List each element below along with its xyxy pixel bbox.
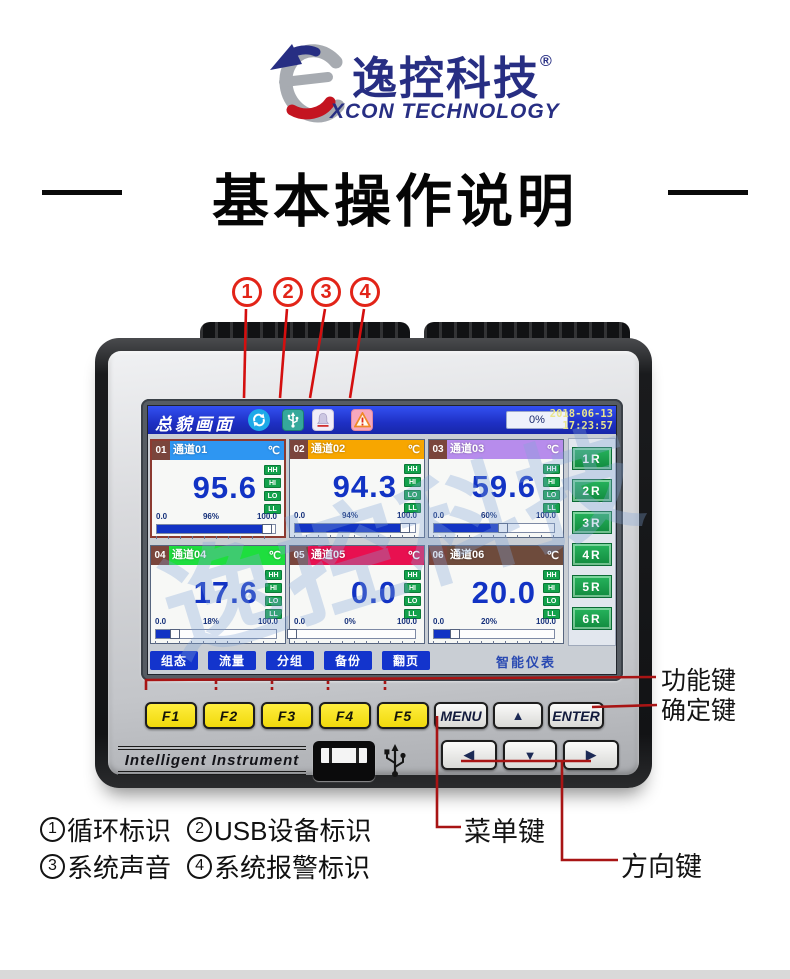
relay-status-column: 1R 2R 3R 4R 5R 6R <box>568 438 616 646</box>
channel-scale: 0.0 0% 100.0 <box>290 617 424 627</box>
channel-value: 17.6 <box>157 571 258 615</box>
channel-scale: 0.0 20% 100.0 <box>429 617 563 627</box>
softkey-button[interactable]: 翻页 <box>382 651 430 670</box>
alarm-badge-hi: HI <box>543 477 560 487</box>
scale-max: 100.0 <box>397 617 417 626</box>
function-key[interactable]: F4 <box>319 702 371 729</box>
channel-bargraph <box>294 523 416 533</box>
relay-button[interactable]: 6R <box>572 607 612 630</box>
recorder-device: 总貌画面 <box>95 338 652 788</box>
relay-button[interactable]: 1R <box>572 447 612 470</box>
legend-text-2: USB设备标识 <box>214 811 371 848</box>
down-arrow-icon: ▼ <box>524 748 537 763</box>
direction-keys-label: 方向键 <box>621 845 702 884</box>
nav-keys: MENU ▲ ENTER <box>434 702 604 729</box>
channel-bargraph <box>155 629 277 639</box>
channel-panel[interactable]: 02 通道02 ℃ 94.3 HH HI LO LL <box>289 439 425 538</box>
device-front-panel: 总貌画面 <box>108 351 639 775</box>
channel-bargraph <box>156 524 276 534</box>
legend-text-1: 循环标识 <box>67 811 171 848</box>
scale-max: 100.0 <box>536 617 556 626</box>
channel-name: 通道05 <box>308 546 408 565</box>
channel-number: 01 <box>152 441 170 460</box>
legend-row-1: 1 循环标识 2 USB设备标识 <box>40 812 387 846</box>
screen-title: 总貌画面 <box>155 410 235 435</box>
function-keys: F1 F2 F3 F4 F5 <box>145 702 429 729</box>
alarm-badge-lo: LO <box>543 490 560 500</box>
softkey-button[interactable]: 分组 <box>266 651 314 670</box>
enter-key[interactable]: ENTER <box>548 702 604 729</box>
alarm-badges: HH HI LO LL <box>264 465 281 514</box>
alarm-badge-lo: LO <box>404 490 421 500</box>
channel-unit: ℃ <box>268 444 284 457</box>
usb-port[interactable] <box>313 741 375 781</box>
brand-name-cn: 逸控科技® <box>352 42 554 107</box>
right-arrow-icon: ▶ <box>586 747 596 763</box>
alarm-badges: HH HI LO LL <box>404 464 421 513</box>
instrument-brand-label: 智能仪表 <box>496 652 556 671</box>
status-bar: 总貌画面 <box>148 406 616 434</box>
scale-percent: 94% <box>290 511 410 520</box>
channel-panel[interactable]: 01 通道01 ℃ 95.6 HH HI LO LL <box>150 439 286 538</box>
channel-header: 02 通道02 ℃ <box>290 440 424 459</box>
alarm-badge-hh: HH <box>404 464 421 474</box>
channel-value: 95.6 <box>158 466 257 510</box>
channel-value: 59.6 <box>435 465 536 509</box>
channel-unit: ℃ <box>408 443 424 456</box>
title-rule-left <box>42 190 122 195</box>
alarm-badge-hh: HH <box>543 570 560 580</box>
channel-value: 94.3 <box>296 465 397 509</box>
date-value: 2018-06-13 <box>531 408 613 420</box>
bargraph-ticks <box>155 641 277 644</box>
channel-header: 04 通道04 ℃ <box>151 546 285 565</box>
channel-value: 0.0 <box>296 571 397 615</box>
usb-symbol-icon <box>382 743 408 779</box>
softkey-button[interactable]: 组态 <box>150 651 198 670</box>
callout-4: 4 <box>350 277 380 307</box>
channel-name: 通道03 <box>447 440 547 459</box>
alarm-badge-hh: HH <box>404 570 421 580</box>
channel-value: 20.0 <box>435 571 536 615</box>
function-key[interactable]: F1 <box>145 702 197 729</box>
system-alarm-icon <box>351 409 373 431</box>
legend-num-3: 3 <box>40 854 65 879</box>
channel-number: 03 <box>429 440 447 459</box>
direction-keys: ◀ ▼ ▶ <box>441 740 619 770</box>
down-key[interactable]: ▼ <box>503 740 557 770</box>
scale-percent: 18% <box>151 617 271 626</box>
channel-header: 06 通道06 ℃ <box>429 546 563 565</box>
channel-number: 05 <box>290 546 308 565</box>
right-key[interactable]: ▶ <box>563 740 619 770</box>
scale-max: 100.0 <box>258 617 278 626</box>
channel-number: 04 <box>151 546 169 565</box>
legend-item-2: 2 USB设备标识 <box>187 811 371 848</box>
menu-key[interactable]: MENU <box>434 702 488 729</box>
channel-number: 02 <box>290 440 308 459</box>
legend-item-1: 1 循环标识 <box>40 811 171 848</box>
menu-key-label: 菜单键 <box>464 810 545 849</box>
brand-logo: 逸控科技® XCON TECHNOLOGY <box>268 40 548 140</box>
legend-num-2: 2 <box>187 817 212 842</box>
scale-max: 100.0 <box>257 512 277 521</box>
channel-unit: ℃ <box>547 443 563 456</box>
lcd-screen[interactable]: 总貌画面 <box>147 405 617 675</box>
system-sound-icon <box>312 409 334 431</box>
channel-grid: 01 通道01 ℃ 95.6 HH HI LO LL <box>150 439 564 644</box>
channel-number: 06 <box>429 546 447 565</box>
channel-bargraph <box>433 523 555 533</box>
left-key[interactable]: ◀ <box>441 740 497 770</box>
alarm-badge-hh: HH <box>265 570 282 580</box>
bargraph-fill <box>156 630 178 638</box>
channel-panel[interactable]: 04 通道04 ℃ 17.6 HH HI LO LL <box>150 545 286 644</box>
softkey-button[interactable]: 流量 <box>208 651 256 670</box>
channel-name: 通道04 <box>169 546 269 565</box>
function-key[interactable]: F3 <box>261 702 313 729</box>
callout-1: 1 <box>232 277 262 307</box>
page: 逸控科技® XCON TECHNOLOGY 基本操作说明 1 2 3 4 总貌画… <box>0 0 790 979</box>
alarm-badge-hi: HI <box>404 477 421 487</box>
legend: 1 循环标识 2 USB设备标识 3 系统声音 4 系统报警标识 <box>40 812 387 886</box>
relay-button[interactable]: 3R <box>572 511 612 534</box>
cycle-icon <box>248 409 270 431</box>
scale-max: 100.0 <box>536 511 556 520</box>
channel-name: 通道06 <box>447 546 547 565</box>
alarm-badge-lo: LO <box>264 491 281 501</box>
alarm-badge-hi: HI <box>543 583 560 593</box>
channel-bargraph <box>294 629 416 639</box>
enter-key-label: 确定键 <box>661 691 736 727</box>
legend-row-2: 3 系统声音 4 系统报警标识 <box>40 849 387 883</box>
function-key[interactable]: F5 <box>377 702 429 729</box>
channel-unit: ℃ <box>408 549 424 562</box>
scale-percent: 60% <box>429 511 549 520</box>
alarm-badge-lo: LO <box>404 596 421 606</box>
alarm-badge-hi: HI <box>264 478 281 488</box>
front-panel-label: Intelligent Instrument <box>118 746 306 775</box>
alarm-badges: HH HI LO LL <box>543 570 560 619</box>
channel-scale: 0.0 96% 100.0 <box>152 512 284 522</box>
usb-port-connector <box>321 748 367 763</box>
channel-header: 03 通道03 ℃ <box>429 440 563 459</box>
channel-panel[interactable]: 06 通道06 ℃ 20.0 HH HI LO LL <box>428 545 564 644</box>
channel-unit: ℃ <box>547 549 563 562</box>
alarm-badge-lo: LO <box>265 596 282 606</box>
bottom-strip <box>0 970 790 979</box>
function-key[interactable]: F2 <box>203 702 255 729</box>
alarm-badges: HH HI LO LL <box>404 570 421 619</box>
alarm-badges: HH HI LO LL <box>543 464 560 513</box>
channel-panel[interactable]: 03 通道03 ℃ 59.6 HH HI LO LL <box>428 439 564 538</box>
relay-button[interactable]: 4R <box>572 543 612 566</box>
time-value: 17:23:57 <box>531 420 613 432</box>
bargraph-ticks <box>156 536 276 539</box>
alarm-badge-lo: LO <box>543 596 560 606</box>
brand-name-en: XCON TECHNOLOGY <box>330 100 560 124</box>
bargraph-ticks <box>294 535 416 538</box>
bargraph-ticks <box>433 641 555 644</box>
channel-name: 通道01 <box>170 441 268 460</box>
relay-button[interactable]: 5R <box>572 575 612 598</box>
up-arrow-icon: ▲ <box>512 708 525 723</box>
channel-scale: 0.0 60% 100.0 <box>429 511 563 521</box>
alarm-badge-hh: HH <box>543 464 560 474</box>
legend-text-3: 系统声音 <box>67 848 171 885</box>
softkey-button[interactable]: 备份 <box>324 651 372 670</box>
alarm-badges: HH HI LO LL <box>265 570 282 619</box>
screen-bezel: 总貌画面 <box>141 399 623 681</box>
channel-header: 05 通道05 ℃ <box>290 546 424 565</box>
bargraph-fill <box>157 525 270 533</box>
channel-unit: ℃ <box>269 549 285 562</box>
channel-panel[interactable]: 05 通道05 ℃ 0.0 HH HI LO LL <box>289 545 425 644</box>
callout-3: 3 <box>311 277 341 307</box>
datetime-display: 2018-06-13 17:23:57 <box>531 408 613 432</box>
bargraph-fill <box>295 524 408 532</box>
legend-item-4: 4 系统报警标识 <box>187 848 370 885</box>
callout-2: 2 <box>273 277 303 307</box>
legend-text-4: 系统报警标识 <box>214 848 370 885</box>
bargraph-ticks <box>294 641 416 644</box>
alarm-badge-hh: HH <box>264 465 281 475</box>
legend-num-1: 1 <box>40 817 65 842</box>
scale-percent: 20% <box>429 617 549 626</box>
left-arrow-icon: ◀ <box>464 747 474 763</box>
registered-mark: ® <box>540 53 554 70</box>
scale-percent: 0% <box>290 617 410 626</box>
channel-header: 01 通道01 ℃ <box>152 441 284 460</box>
page-title: 基本操作说明 <box>0 156 790 238</box>
channel-name: 通道02 <box>308 440 408 459</box>
title-rule-right <box>668 190 748 195</box>
bargraph-ticks <box>433 535 555 538</box>
usb-device-icon <box>282 409 304 431</box>
channel-scale: 0.0 94% 100.0 <box>290 511 424 521</box>
legend-item-3: 3 系统声音 <box>40 848 171 885</box>
alarm-badge-hi: HI <box>265 583 282 593</box>
alarm-badge-hi: HI <box>404 583 421 593</box>
channel-scale: 0.0 18% 100.0 <box>151 617 285 627</box>
bargraph-fill <box>434 524 506 532</box>
up-key[interactable]: ▲ <box>493 702 543 729</box>
scale-max: 100.0 <box>397 511 417 520</box>
scale-percent: 96% <box>152 512 270 521</box>
bargraph-fill <box>434 630 458 638</box>
relay-button[interactable]: 2R <box>572 479 612 502</box>
channel-bargraph <box>433 629 555 639</box>
legend-num-4: 4 <box>187 854 212 879</box>
